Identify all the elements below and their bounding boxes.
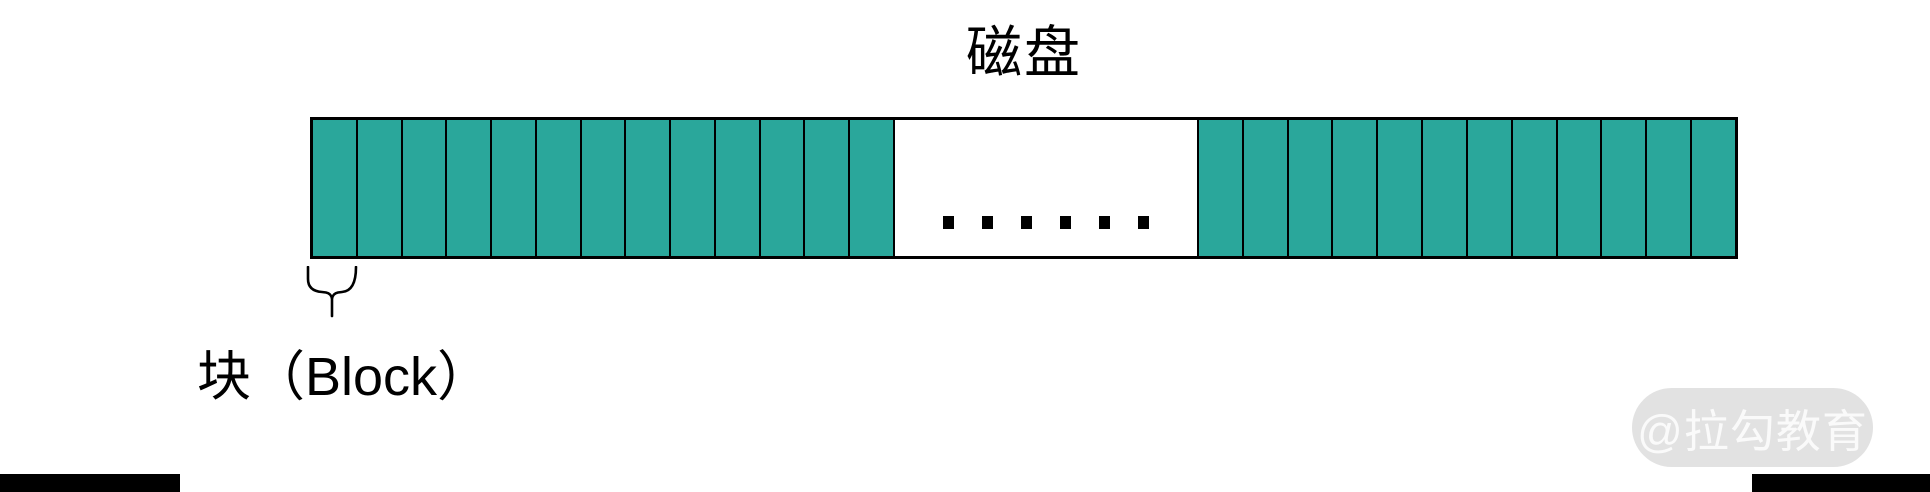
disk-block bbox=[1556, 120, 1601, 256]
disk-block bbox=[1287, 120, 1332, 256]
disk-block bbox=[803, 120, 848, 256]
disk-block bbox=[1466, 120, 1511, 256]
watermark-text: @拉勾教育 bbox=[1637, 395, 1868, 460]
disk-block bbox=[490, 120, 535, 256]
disk-bar bbox=[310, 117, 1738, 259]
disk-block bbox=[1511, 120, 1556, 256]
disk-block bbox=[445, 120, 490, 256]
disk-block bbox=[1199, 120, 1242, 256]
disk-block bbox=[1331, 120, 1376, 256]
disk-block bbox=[1645, 120, 1690, 256]
ellipsis-dot bbox=[943, 216, 954, 229]
ellipsis-dot bbox=[982, 216, 993, 229]
disk-block bbox=[401, 120, 446, 256]
disk-gap bbox=[893, 120, 1199, 256]
ellipsis-dot bbox=[1021, 216, 1032, 229]
disk-block bbox=[580, 120, 625, 256]
slide-canvas: 磁盘 块（Block） @拉勾教育 bbox=[0, 0, 1930, 492]
disk-block bbox=[313, 120, 356, 256]
ellipsis-dot bbox=[1138, 216, 1149, 229]
disk-block bbox=[1242, 120, 1287, 256]
disk-block bbox=[848, 120, 893, 256]
bottom-right-black-bar bbox=[1752, 474, 1930, 492]
disk-block bbox=[356, 120, 401, 256]
disk-block bbox=[1600, 120, 1645, 256]
disk-block bbox=[759, 120, 804, 256]
brace-icon bbox=[305, 266, 359, 318]
disk-block bbox=[1376, 120, 1421, 256]
ellipsis-dot-row bbox=[895, 216, 1197, 229]
disk-block bbox=[535, 120, 580, 256]
ellipsis-dot bbox=[1099, 216, 1110, 229]
diagram-title: 磁盘 bbox=[310, 8, 1738, 89]
disk-right-section bbox=[1199, 120, 1735, 256]
disk-block bbox=[714, 120, 759, 256]
disk-block bbox=[669, 120, 714, 256]
block-label: 块（Block） bbox=[197, 332, 491, 411]
disk-left-section bbox=[313, 120, 893, 256]
ellipsis-dot bbox=[1060, 216, 1071, 229]
disk-block bbox=[624, 120, 669, 256]
disk-block bbox=[1690, 120, 1735, 256]
watermark-badge: @拉勾教育 bbox=[1632, 388, 1873, 467]
disk-block bbox=[1421, 120, 1466, 256]
bottom-left-black-bar bbox=[0, 474, 180, 492]
